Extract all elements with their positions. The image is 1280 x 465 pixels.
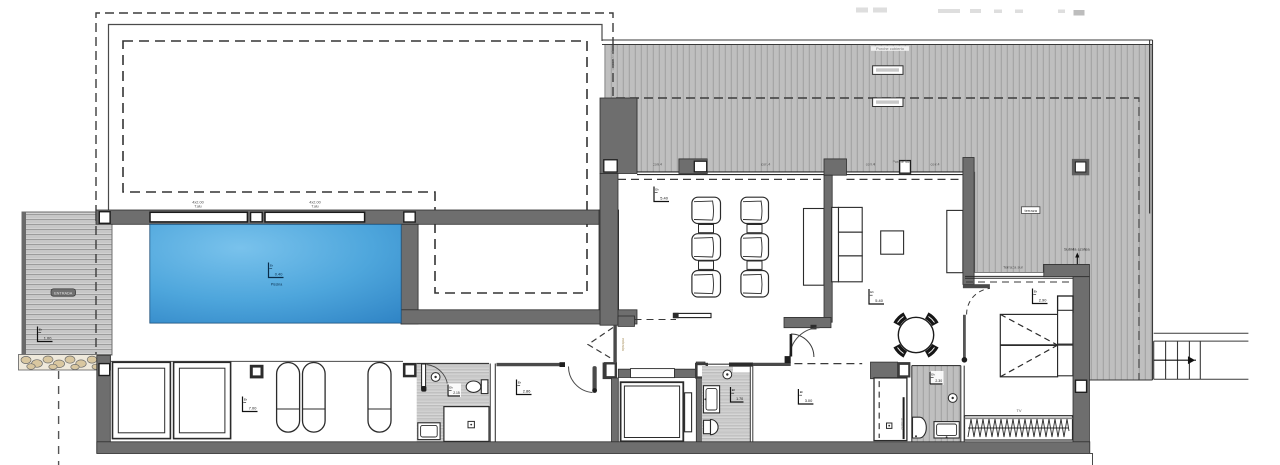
svg-text:Porche Sur: Porche Sur	[893, 160, 912, 164]
svg-text:entrada: entrada	[621, 338, 625, 352]
svg-text:2.90: 2.90	[1039, 297, 1047, 302]
svg-text:1.70: 1.70	[736, 397, 743, 401]
svg-text:corr.4: corr.4	[761, 163, 770, 167]
svg-text:Eh: Eh	[39, 328, 43, 332]
svg-text:T.alu: T.alu	[194, 205, 201, 209]
svg-text:2.86: 2.86	[523, 388, 531, 393]
svg-text:Eh: Eh	[244, 398, 248, 402]
svg-text:Eh: Eh	[518, 381, 522, 385]
svg-text:2.15: 2.15	[453, 391, 460, 395]
svg-text:corr.4: corr.4	[866, 163, 875, 167]
svg-text:Eh: Eh	[732, 388, 736, 392]
svg-text:TV: TV	[1016, 408, 1021, 413]
svg-text:Eh: Eh	[270, 264, 274, 268]
svg-text:3.00: 3.00	[805, 398, 813, 403]
svg-text:Eh: Eh	[870, 290, 874, 294]
svg-text:armario: armario	[900, 418, 904, 430]
svg-text:ENTRADA: ENTRADA	[54, 291, 73, 295]
svg-text:Subida azotea: Subida azotea	[1064, 247, 1090, 252]
svg-text:Eh: Eh	[655, 188, 659, 192]
svg-text:5.40: 5.40	[875, 298, 883, 303]
svg-text:T.alu: T.alu	[311, 205, 318, 209]
svg-text:0.40: 0.40	[275, 271, 283, 276]
svg-text:7.00: 7.00	[249, 405, 257, 410]
svg-text:corr.4: corr.4	[653, 163, 662, 167]
svg-text:Eh: Eh	[449, 386, 453, 390]
svg-text:Piscina: Piscina	[271, 283, 283, 287]
svg-text:proyeccion: proyeccion	[611, 51, 616, 70]
svg-text:Eh: Eh	[931, 373, 935, 377]
svg-text:2.30: 2.30	[935, 379, 942, 383]
svg-text:1.00: 1.00	[44, 335, 52, 340]
svg-text:corr.4: corr.4	[931, 163, 940, 167]
svg-text:5.40: 5.40	[660, 195, 668, 200]
svg-text:Terraza sur: Terraza sur	[1003, 265, 1024, 270]
svg-text:terraza: terraza	[1024, 208, 1037, 213]
svg-text:Porche cubierto: Porche cubierto	[876, 46, 905, 51]
svg-text:Eh: Eh	[1034, 290, 1038, 294]
svg-text:Eh: Eh	[800, 390, 804, 394]
